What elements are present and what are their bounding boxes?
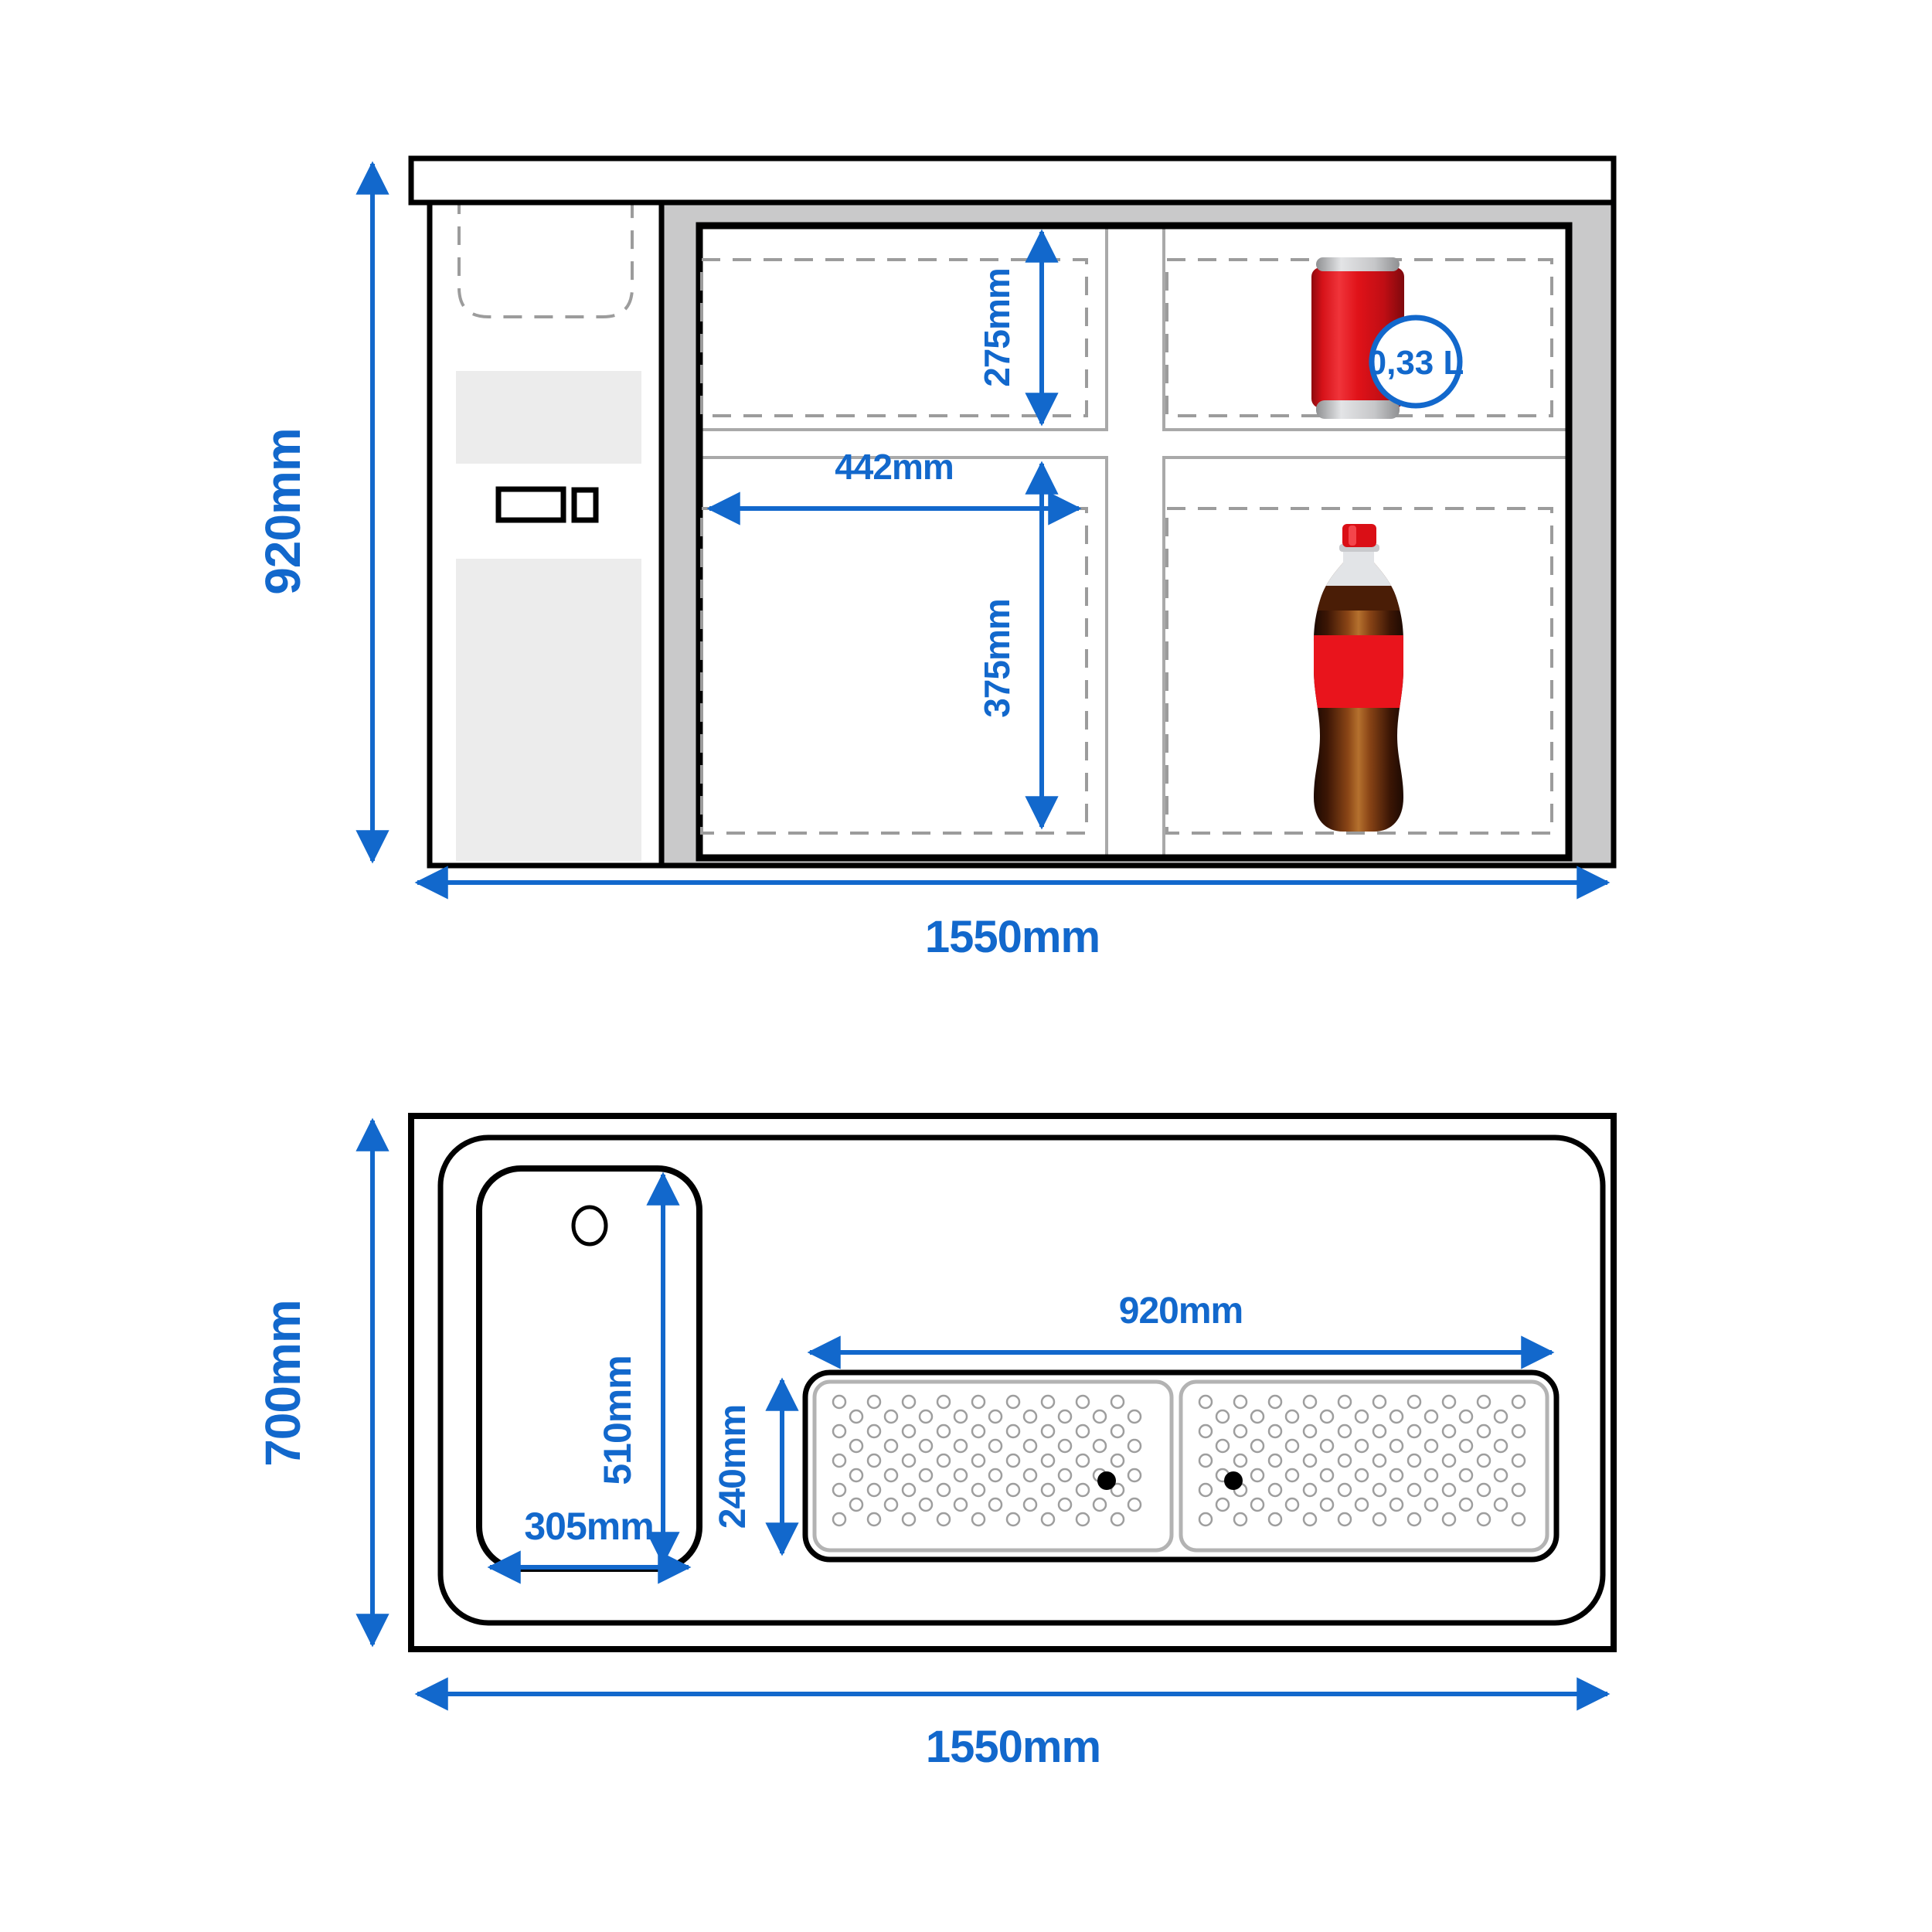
vent-panel-upper xyxy=(456,371,641,464)
drawing-canvas: 0,33 L 920mm 1550mm 275mm 442mm 375mm xyxy=(0,0,1932,1932)
vent-panel-lower xyxy=(456,559,641,861)
technical-drawing-page: 0,33 L 920mm 1550mm 275mm 442mm 375mm xyxy=(0,0,1932,1932)
lower-compartment-height-label: 375mm xyxy=(977,599,1017,718)
drain-point-right xyxy=(1224,1471,1243,1490)
overall-height-label: 920mm xyxy=(255,428,311,595)
bottle-label-band xyxy=(1311,635,1406,708)
upper-compartment-height-label: 275mm xyxy=(977,268,1017,387)
sink-length-label: 510mm xyxy=(596,1355,639,1485)
drainer-width-label: 920mm xyxy=(1119,1291,1243,1332)
cooler-interior xyxy=(699,226,1569,858)
drain-point-left xyxy=(1097,1471,1116,1490)
countertop xyxy=(411,158,1614,202)
can-capacity-label: 0,33 L xyxy=(1368,344,1464,382)
front-overall-width-label: 1550mm xyxy=(925,912,1100,962)
control-display xyxy=(498,489,563,520)
compartment-width-label: 442mm xyxy=(835,447,954,487)
front-view: 0,33 L 920mm 1550mm 275mm 442mm 375mm xyxy=(255,158,1614,962)
sink-width-label: 305mm xyxy=(524,1505,653,1548)
capacity-badge: 0,33 L xyxy=(1368,318,1464,406)
overall-depth-label: 700mm xyxy=(255,1300,311,1467)
bottle-cap xyxy=(1342,524,1376,547)
tap-hole xyxy=(573,1207,606,1244)
top-overall-width-label: 1550mm xyxy=(926,1722,1100,1772)
drainer-depth-label: 240mm xyxy=(713,1405,753,1529)
top-view: 700mm 1550mm 510mm 305mm 920mm 240mm xyxy=(255,1116,1614,1772)
control-switch xyxy=(574,490,596,520)
